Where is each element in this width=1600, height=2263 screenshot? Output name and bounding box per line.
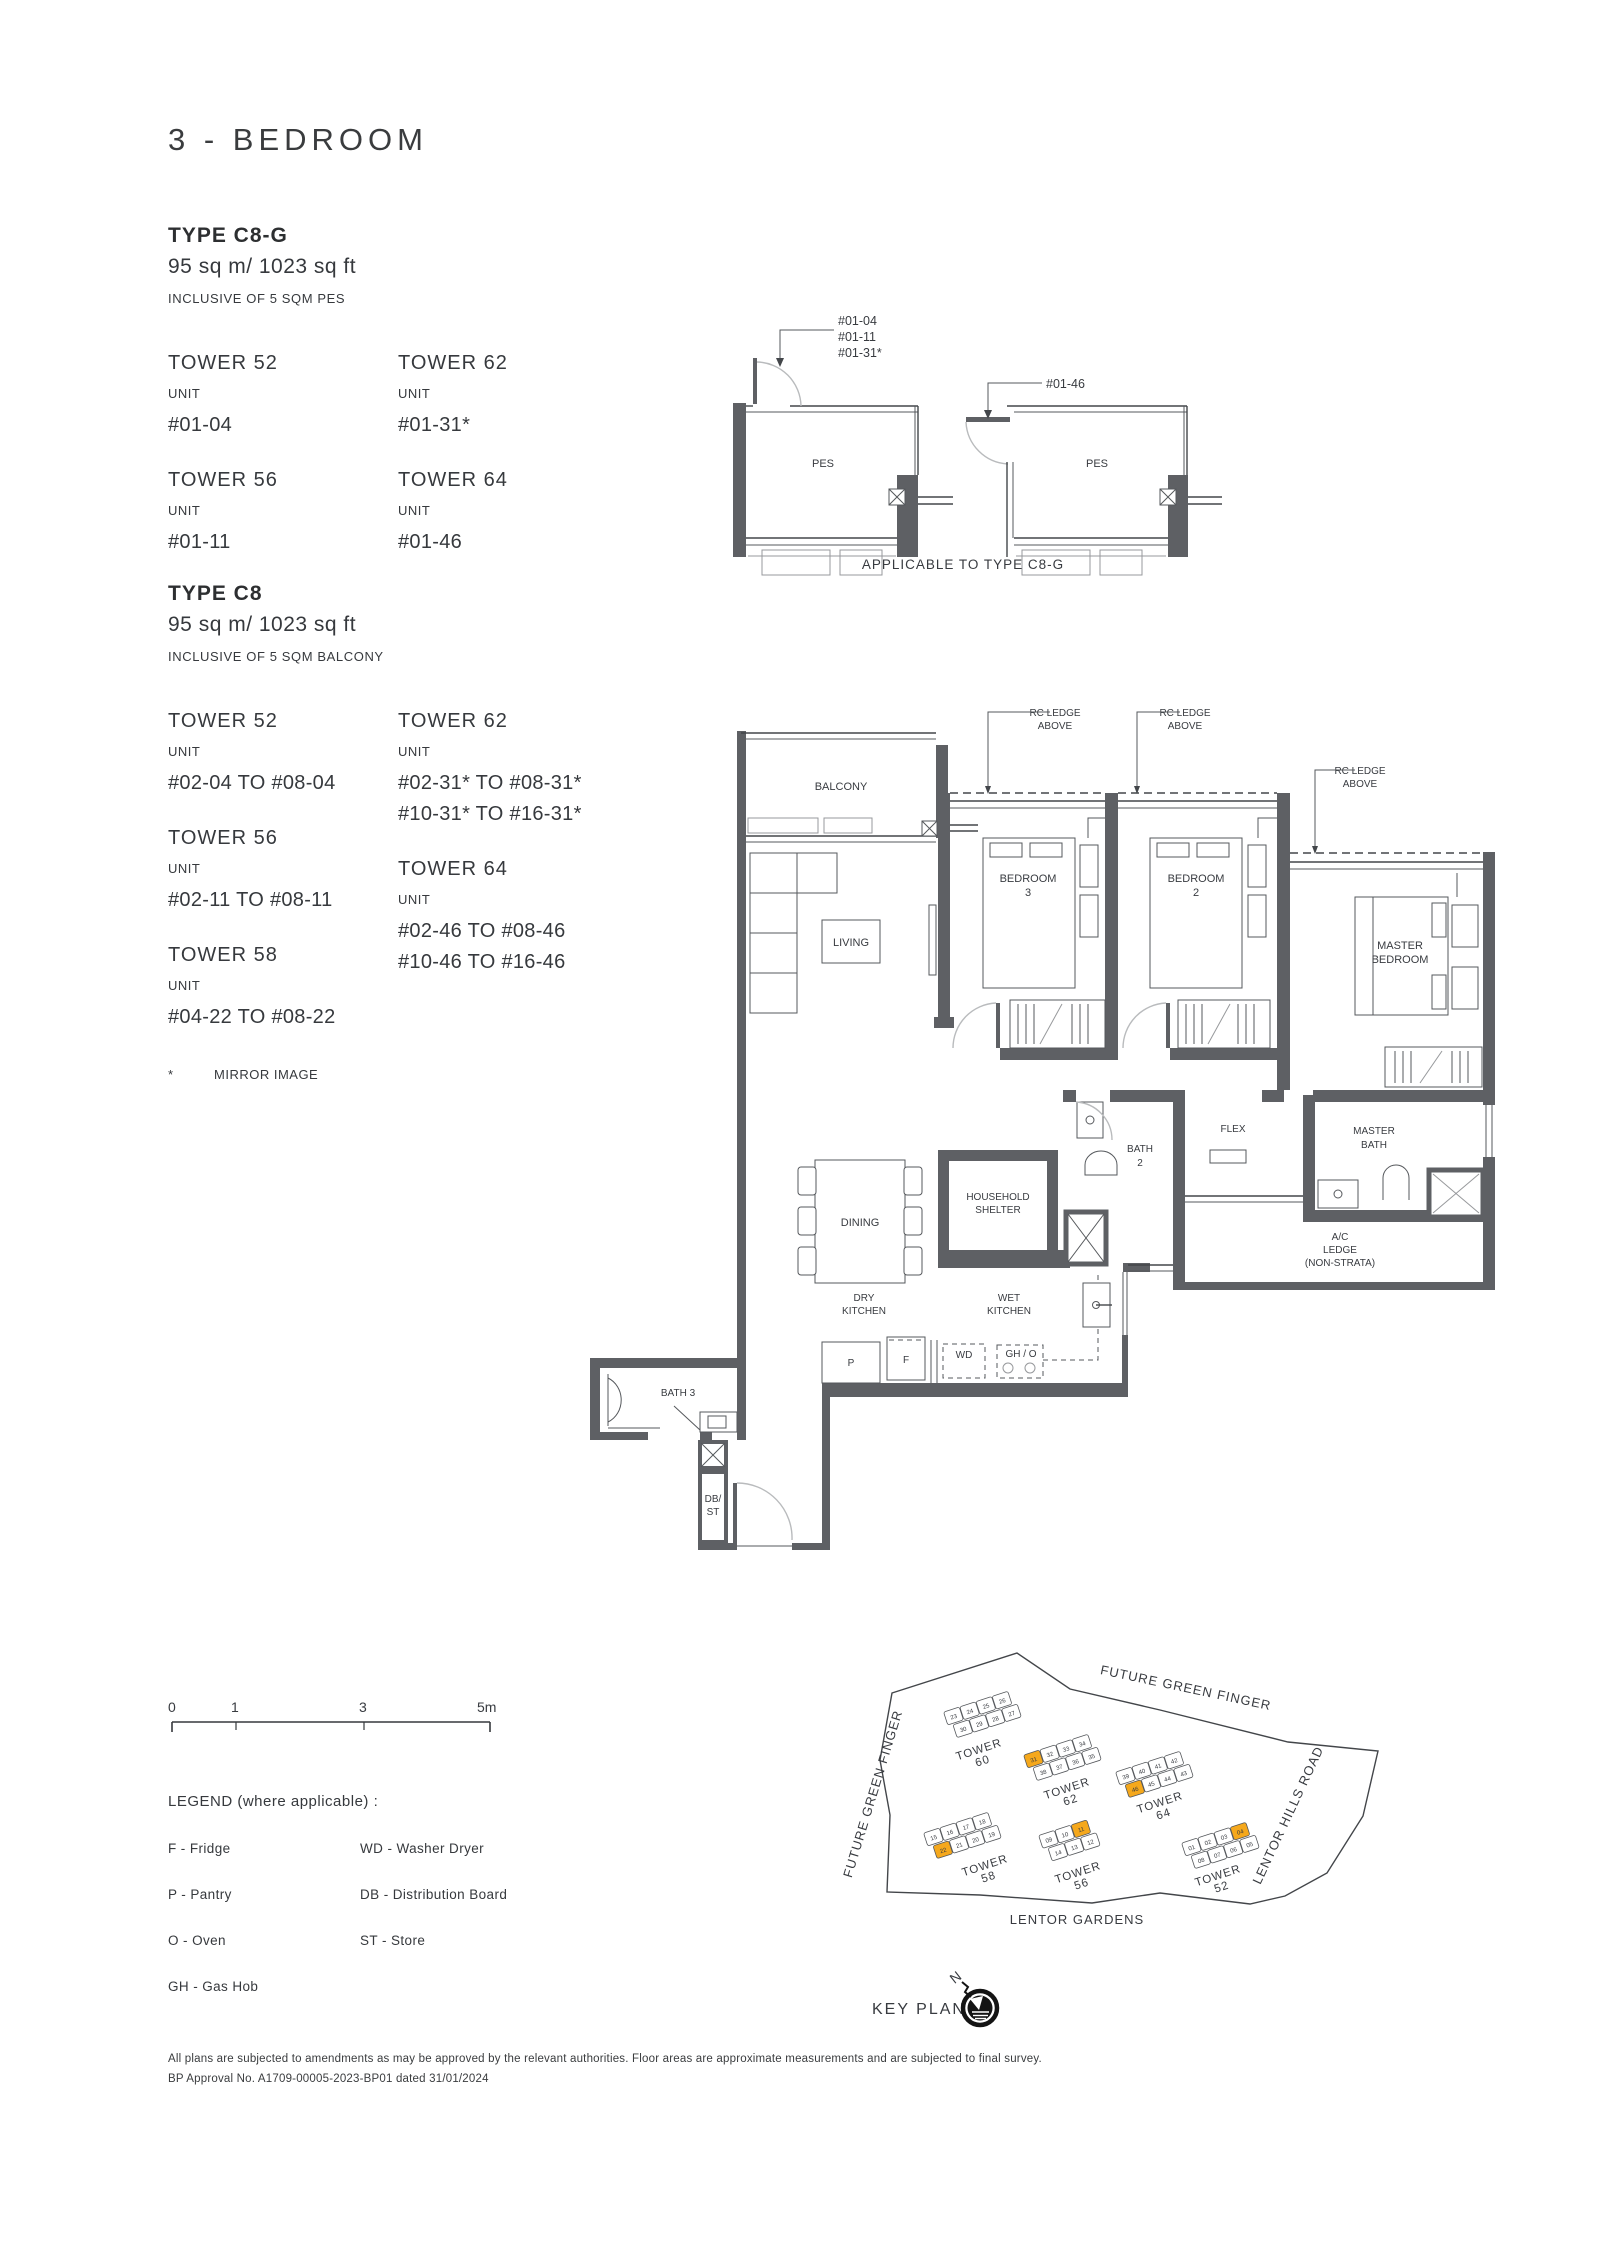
type-c8g-note: INCLUSIVE OF 5 SQM PES: [168, 291, 648, 306]
key-plan-towers: 2324252630292827TOWER603132333438373635T…: [924, 1690, 1260, 1901]
tower-cluster: 0102030408070605: [1182, 1821, 1260, 1871]
tower-group: TOWER 62 UNIT #01-31*: [398, 352, 628, 437]
footnote-text: MIRROR IMAGE: [214, 1067, 318, 1082]
master-bedroom-label: BEDROOM: [1372, 954, 1429, 966]
scale-bar: 0 1 3 5m: [150, 1685, 520, 1740]
bedroom3-label: 3: [1025, 887, 1031, 899]
scale-tick: 1: [231, 1699, 239, 1715]
tower-label: TOWER58: [961, 1853, 1014, 1891]
washer-dryer-label: WD: [956, 1350, 973, 1361]
rc-ledge-callout: ABOVE: [1038, 721, 1073, 732]
tower-label: TOWER56: [1054, 1860, 1107, 1898]
c8g-column-2: TOWER 62 UNIT #01-31* TOWER 64 UNIT #01-…: [398, 320, 628, 554]
bedroom2-label: BEDROOM: [1168, 873, 1225, 885]
master-bath-label: BATH: [1361, 1140, 1387, 1151]
scale-tick: 0: [168, 1699, 176, 1715]
pes-left-callout-2: #01-11: [838, 330, 876, 344]
legend-item: GH - Gas Hob: [168, 1979, 360, 1994]
c8g-column-1: TOWER 52 UNIT #01-04 TOWER 56 UNIT #01-1…: [168, 320, 398, 554]
unit-label: UNIT: [398, 503, 628, 518]
tower-label: TOWER62: [1043, 1776, 1096, 1814]
tower-group: TOWER 58 UNIT #04-22 TO #08-22: [168, 944, 398, 1029]
tower-label: TOWER60: [955, 1737, 1008, 1775]
legend-item: WD - Washer Dryer: [360, 1841, 552, 1856]
tower-cluster: 3132333438373635: [1024, 1733, 1102, 1783]
pes-plan-right: PES #01-46: [966, 377, 1222, 575]
unit-range: #01-31*: [398, 414, 628, 437]
tower-group: TOWER 64 UNIT #01-46: [398, 469, 628, 554]
legend-item: F - Fridge: [168, 1841, 360, 1856]
pes-mini-plan: PES #01-04 #01-11 #01-31* PES #01-46 APP…: [700, 190, 1500, 580]
tower-name: TOWER 58: [168, 944, 398, 967]
tower-name: TOWER 52: [168, 352, 398, 375]
north-letter: N: [947, 1968, 965, 1987]
bath2-label: BATH: [1127, 1144, 1153, 1155]
main-floor-plan: BALCONY LIVING RC LEDGE ABOVE RC LEDGE A…: [555, 655, 1585, 1585]
key-plan: FUTURE GREEN FINGER FUTURE GREEN FINGER …: [820, 1612, 1460, 2052]
tower-cluster: 2324252630292827: [944, 1690, 1022, 1740]
mirror-image-footnote: *MIRROR IMAGE: [168, 1067, 398, 1082]
pes-left-callout-1: #01-04: [838, 314, 877, 328]
tower-cluster: 3940414246454443: [1116, 1750, 1194, 1800]
pes-label: PES: [812, 458, 834, 470]
tower-name: TOWER 56: [168, 827, 398, 850]
unit-range: #01-46: [398, 531, 628, 554]
type-c8g-area: 95 sq m/ 1023 sq ft: [168, 255, 648, 279]
living-label: LIVING: [833, 937, 869, 949]
unit-label: UNIT: [168, 978, 398, 993]
c8-column-1: TOWER 52 UNIT #02-04 TO #08-04 TOWER 56 …: [168, 678, 398, 1082]
road-future-green-finger-top: FUTURE GREEN FINGER: [1099, 1662, 1273, 1713]
disclaimer-line1: All plans are subjected to amendments as…: [168, 2049, 1358, 2069]
unit-label: UNIT: [398, 386, 628, 401]
section-type-c8g: TYPE C8-G 95 sq m/ 1023 sq ft INCLUSIVE …: [168, 224, 648, 554]
road-lentor-gardens: LENTOR GARDENS: [1010, 1912, 1144, 1927]
pantry-label: P: [848, 1358, 855, 1369]
wet-kitchen-label: KITCHEN: [987, 1306, 1031, 1317]
tower-cluster: 091011141312: [1039, 1818, 1101, 1862]
bath3-label: BATH 3: [661, 1388, 696, 1399]
ac-ledge-label: LEDGE: [1323, 1245, 1357, 1256]
ac-ledge-label: A/C: [1332, 1232, 1349, 1243]
mini-plan-caption: APPLICABLE TO TYPE C8-G: [862, 557, 1064, 572]
footnote-symbol: *: [168, 1067, 214, 1082]
unit-label: UNIT: [168, 386, 398, 401]
rc-ledge-callout: RC LEDGE: [1159, 708, 1210, 719]
rc-ledge-callout: RC LEDGE: [1029, 708, 1080, 719]
tower-name: TOWER 64: [398, 469, 628, 492]
legend-item: O - Oven: [168, 1933, 360, 1948]
rc-ledge-callout: RC LEDGE: [1334, 766, 1385, 777]
flex-label: FLEX: [1220, 1124, 1245, 1135]
ac-ledge-label: (NON-STRATA): [1305, 1258, 1375, 1269]
scale-tick: 5m: [477, 1699, 496, 1715]
unit-range: #01-04: [168, 414, 398, 437]
bath2-label: 2: [1137, 1158, 1143, 1169]
disclaimer-line2: BP Approval No. A1709-00005-2023-BP01 da…: [168, 2069, 1358, 2089]
bedroom2-label: 2: [1193, 887, 1199, 899]
rc-ledge-callout: ABOVE: [1343, 779, 1378, 790]
household-shelter-label: HOUSEHOLD: [966, 1192, 1029, 1203]
dining-label: DINING: [841, 1217, 880, 1229]
tower-cluster: 1516171822212019: [924, 1811, 1002, 1861]
key-plan-label: KEY PLAN: [872, 2001, 966, 2018]
tower-group: TOWER 56 UNIT #01-11: [168, 469, 398, 554]
legend-item: P - Pantry: [168, 1887, 360, 1902]
legend-heading: LEGEND (where applicable) :: [168, 1793, 688, 1810]
pes-left-callout-3: #01-31*: [838, 346, 882, 360]
unit-label: UNIT: [168, 503, 398, 518]
tower-group: TOWER 52 UNIT #01-04: [168, 352, 398, 437]
unit-range: #02-04 TO #08-04: [168, 772, 398, 795]
gas-hob-oven-label: GH / O: [1005, 1349, 1036, 1360]
type-c8-area: 95 sq m/ 1023 sq ft: [168, 613, 648, 637]
dry-kitchen-label: KITCHEN: [842, 1306, 886, 1317]
master-bath-label: MASTER: [1353, 1126, 1395, 1137]
bedroom3-label: BEDROOM: [1000, 873, 1057, 885]
unit-label: UNIT: [168, 744, 398, 759]
legend-item: ST - Store: [360, 1933, 552, 1948]
tower-label: TOWER52: [1194, 1863, 1247, 1901]
master-bedroom-label: MASTER: [1377, 940, 1423, 952]
tower-label: TOWER64: [1136, 1790, 1189, 1828]
wet-kitchen-label: WET: [998, 1293, 1020, 1304]
tower-group: TOWER 52 UNIT #02-04 TO #08-04: [168, 710, 398, 795]
tower-name: TOWER 62: [398, 352, 628, 375]
type-c8-heading: TYPE C8: [168, 582, 648, 606]
road-lentor-hills-road: LENTOR HILLS ROAD: [1249, 1744, 1326, 1887]
pes-label: PES: [1086, 458, 1108, 470]
legend-item: DB - Distribution Board: [360, 1887, 552, 1902]
unit-range: #04-22 TO #08-22: [168, 1006, 398, 1029]
unit-range: #01-11: [168, 531, 398, 554]
road-future-green-finger-left: FUTURE GREEN FINGER: [840, 1708, 905, 1879]
db-st-label: DB/: [705, 1494, 722, 1505]
fridge-label: F: [903, 1355, 909, 1366]
tower-name: TOWER 52: [168, 710, 398, 733]
pes-plan-left: PES #01-04 #01-11 #01-31*: [733, 314, 953, 575]
rc-ledge-callout: ABOVE: [1168, 721, 1203, 732]
pes-right-callout: #01-46: [1046, 377, 1085, 391]
tower-name: TOWER 56: [168, 469, 398, 492]
db-st-label: ST: [707, 1507, 720, 1518]
household-shelter-label: SHELTER: [975, 1205, 1020, 1216]
unit-label: UNIT: [168, 861, 398, 876]
page-title: 3 - BEDROOM: [168, 122, 428, 158]
balcony-label: BALCONY: [815, 781, 868, 793]
scale-tick: 3: [359, 1699, 367, 1715]
dry-kitchen-label: DRY: [854, 1293, 875, 1304]
legend: LEGEND (where applicable) : F - FridgeWD…: [168, 1793, 688, 1994]
disclaimer: All plans are subjected to amendments as…: [168, 2049, 1358, 2089]
type-c8g-heading: TYPE C8-G: [168, 224, 648, 248]
unit-range: #02-11 TO #08-11: [168, 889, 398, 912]
tower-group: TOWER 56 UNIT #02-11 TO #08-11: [168, 827, 398, 912]
